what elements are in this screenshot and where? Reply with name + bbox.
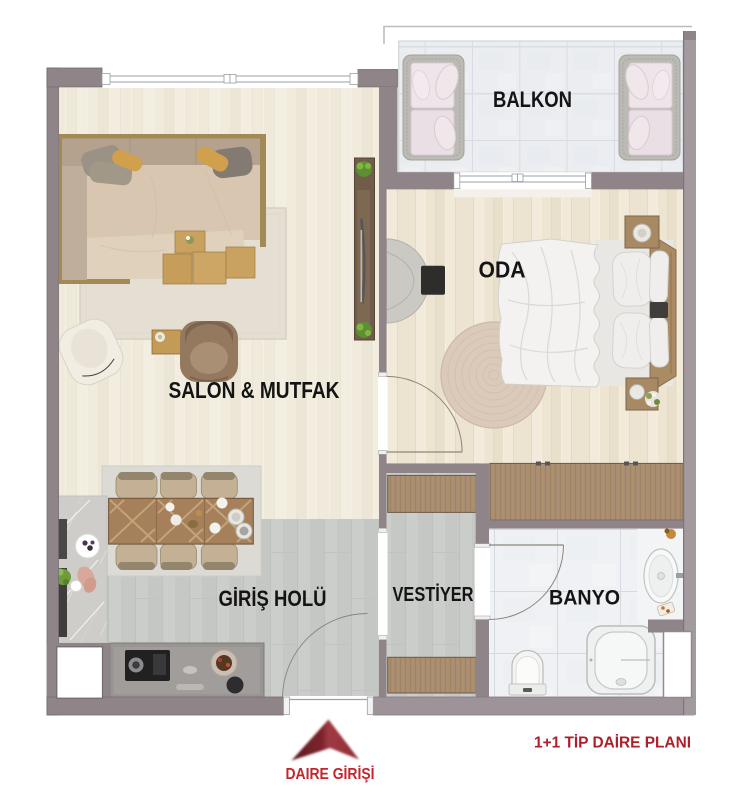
svg-text:ODA: ODA — [479, 257, 526, 283]
svg-text:1+1 TİP DAİRE PLANI: 1+1 TİP DAİRE PLANI — [534, 734, 691, 752]
svg-text:VESTİYER: VESTİYER — [393, 583, 474, 606]
svg-text:DAIRE GİRİŞİ: DAIRE GİRİŞİ — [286, 765, 375, 783]
svg-text:BALKON: BALKON — [493, 87, 572, 112]
svg-text:GİRİŞ HOLÜ: GİRİŞ HOLÜ — [219, 586, 327, 611]
svg-text:BANYO: BANYO — [549, 586, 620, 610]
svg-text:SALON & MUTFAK: SALON & MUTFAK — [169, 377, 340, 403]
